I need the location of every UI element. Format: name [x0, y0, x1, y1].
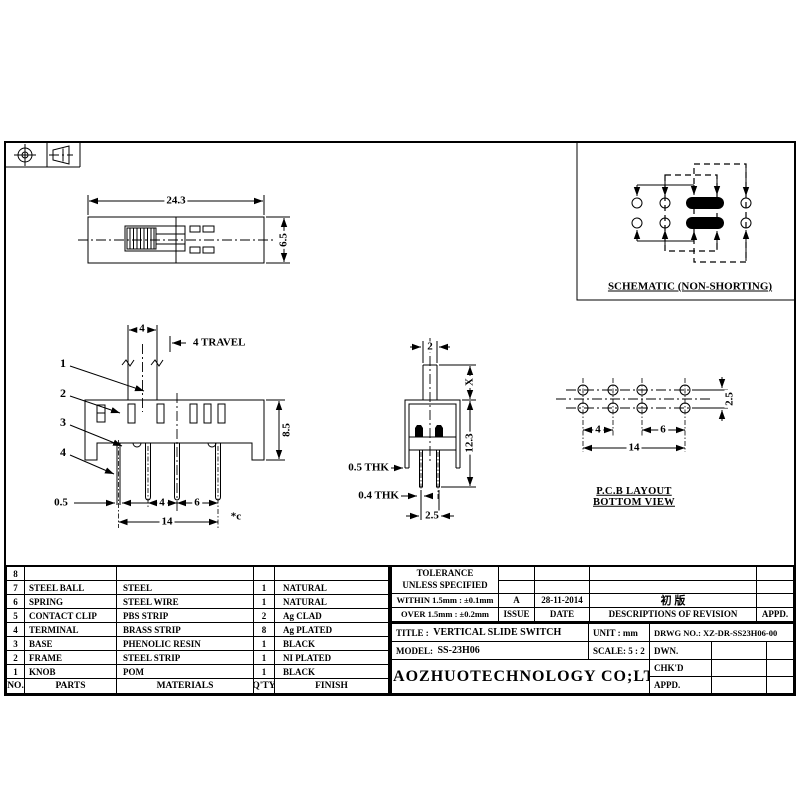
parts-row-qty: 1 — [254, 581, 275, 595]
parts-header-parts: PARTS — [25, 679, 117, 693]
dim-front-pitch-b: 6 — [192, 498, 202, 509]
parts-row-part: SPRING — [25, 595, 117, 609]
tolerance-over: OVER 1.5mm : ±0.2mm — [392, 608, 499, 622]
model-label: MODEL: — [396, 646, 433, 656]
revision-empty-cell — [757, 567, 793, 581]
front-view — [70, 325, 285, 528]
revision-empty-cell — [590, 581, 757, 595]
callout-4-terminal: 4 — [60, 446, 66, 458]
revision-empty-cell — [535, 567, 590, 581]
parts-row-material: BRASS STRIP — [117, 623, 254, 637]
title-label: TITLE : — [396, 628, 429, 638]
pcb-bottom-view-caption: BOTTOM VIEW — [593, 498, 675, 509]
note-front-travel: 4 TRAVEL — [193, 338, 245, 349]
revision-empty-cell — [499, 567, 535, 581]
parts-row-part: KNOB — [25, 665, 117, 679]
revision-appd-label: APPD. — [757, 608, 793, 622]
revision-block: TOLERANCE UNLESS SPECIFIED WITHIN 1.5mm … — [390, 565, 795, 623]
parts-row-part: CONTACT CLIP — [25, 609, 117, 623]
parts-header-no: NO. — [7, 679, 25, 693]
parts-row-no: 4 — [7, 623, 25, 637]
date-label: DATE — [535, 608, 590, 622]
note-side-frame-thickness: 0.5 THK — [348, 463, 389, 474]
appd-label: APPD. — [650, 677, 712, 694]
parts-row-qty — [254, 567, 275, 581]
company-name: XIAOZHUOTECHNOLOGY CO;LTD — [392, 660, 650, 693]
dim-front-knob-width: 4 — [137, 324, 147, 335]
dwn-value-cell — [712, 642, 767, 660]
parts-row-material: STEEL WIRE — [117, 595, 254, 609]
chkd-value-cell — [712, 660, 767, 677]
parts-row-qty: 2 — [254, 609, 275, 623]
revision-empty-cell — [535, 581, 590, 595]
dwn-appd-cell — [767, 642, 793, 660]
dim-side-knob-width: 2 — [425, 342, 435, 353]
title-cell: TITLE : VERTICAL SLIDE SWITCH — [392, 624, 589, 642]
parts-row-material: STEEL STRIP — [117, 651, 254, 665]
drawing-number-cell: DRWG NO.: XZ-DR-SS23H06-00 — [650, 624, 793, 642]
issue-value: A — [499, 594, 535, 608]
dim-front-total-pitch: 14 — [160, 517, 175, 528]
parts-row-qty: 1 — [254, 665, 275, 679]
parts-row-qty: 1 — [254, 651, 275, 665]
dim-front-height: 8.5 — [282, 421, 293, 439]
parts-row-no: 5 — [7, 609, 25, 623]
revision-empty-cell — [757, 594, 793, 608]
parts-header-finish: FINISH — [275, 679, 388, 693]
dim-pcb-pitch-a: 4 — [593, 425, 603, 436]
dim-side-pin-span: 2.5 — [423, 511, 441, 522]
title-value: VERTICAL SLIDE SWITCH — [433, 627, 561, 638]
dim-front-pitch-a: 4 — [157, 498, 167, 509]
dwn-label: DWN. — [650, 642, 712, 660]
schematic-diagram — [577, 142, 795, 300]
parts-row-no: 3 — [7, 637, 25, 651]
parts-row-finish: Ag PLATED — [275, 623, 388, 637]
pcb-layout-caption: P.C.B LAYOUT — [596, 487, 671, 498]
parts-row-part: STEEL BALL — [25, 581, 117, 595]
tolerance-header: TOLERANCE UNLESS SPECIFIED — [392, 567, 499, 594]
revision-empty-cell — [757, 581, 793, 595]
parts-row-part: FRAME — [25, 651, 117, 665]
parts-row-no: 1 — [7, 665, 25, 679]
issue-label: ISSUE — [499, 608, 535, 622]
callout-2-frame: 2 — [60, 387, 66, 399]
parts-row-material: PBS STRIP — [117, 609, 254, 623]
parts-row-no: 8 — [7, 567, 25, 581]
model-value: SS-23H06 — [438, 645, 480, 656]
unit-label: UNIT : — [593, 628, 621, 638]
parts-row-qty: 1 — [254, 595, 275, 609]
dim-top-height: 6.5 — [279, 231, 290, 249]
tolerance-within: WITHIN 1.5mm : ±0.1mm — [392, 594, 499, 608]
parts-row-finish: Ag CLAD — [275, 609, 388, 623]
tolerance-line1: TOLERANCE — [417, 568, 474, 580]
parts-row-no: 2 — [7, 651, 25, 665]
parts-table: 8 7 STEEL BALL STEEL 1 NATURAL 6 SPRING … — [5, 565, 390, 695]
parts-row-finish: BLACK — [275, 637, 388, 651]
parts-row-finish: NATURAL — [275, 595, 388, 609]
parts-row-qty: 1 — [254, 637, 275, 651]
parts-row-part — [25, 567, 117, 581]
parts-header-qty: Q'TY — [254, 679, 275, 693]
revision-empty-cell — [499, 581, 535, 595]
scale-value: 5 : 2 — [628, 646, 645, 656]
drawing-sheet: 24.3 6.5 4 4 TRAVEL 1 2 3 4 8.5 0.5 4 6 … — [0, 0, 800, 800]
unit-value: mm — [623, 628, 638, 638]
parts-row-part: BASE — [25, 637, 117, 651]
title-block: TITLE : VERTICAL SLIDE SWITCH UNIT : mm … — [390, 622, 795, 695]
note-side-pin-thickness: 0.4 THK — [358, 491, 399, 502]
side-view — [391, 338, 476, 520]
revision-empty-cell — [590, 567, 757, 581]
revision-description-value: 初 版 — [590, 594, 757, 608]
parts-row-finish: NATURAL — [275, 581, 388, 595]
parts-row-qty: 8 — [254, 623, 275, 637]
date-value: 28-11-2014 — [535, 594, 590, 608]
chkd-label: CHK'D — [650, 660, 712, 677]
revision-description-label: DESCRIPTIONS OF REVISION — [590, 608, 757, 622]
pcb-layout-view — [556, 377, 728, 452]
dim-pcb-row-pitch: 2.5 — [725, 390, 736, 408]
projection-symbol-icon — [5, 142, 80, 167]
parts-row-finish: BLACK — [275, 665, 388, 679]
parts-header-materials: MATERIALS — [117, 679, 254, 693]
parts-row-material: PHENOLIC RESIN — [117, 637, 254, 651]
tolerance-line2: UNLESS SPECIFIED — [402, 580, 487, 592]
parts-row-material — [117, 567, 254, 581]
parts-row-finish — [275, 567, 388, 581]
callout-1-knob: 1 — [60, 357, 66, 369]
dim-front-pin-thickness: 0.5 — [52, 498, 70, 509]
parts-row-finish: NI PLATED — [275, 651, 388, 665]
dim-pcb-pitch-b: 6 — [658, 425, 668, 436]
parts-row-no: 7 — [7, 581, 25, 595]
dim-side-total-height: 12.3 — [465, 431, 476, 454]
schematic-caption: SCHEMATIC (NON-SHORTING) — [608, 282, 772, 293]
scale-label: SCALE: — [593, 646, 626, 656]
dim-pcb-total-pitch: 14 — [627, 443, 642, 454]
dim-top-width: 24.3 — [164, 196, 187, 207]
model-cell: MODEL: SS-23H06 — [392, 642, 589, 660]
parts-row-no: 6 — [7, 595, 25, 609]
callout-3-base: 3 — [60, 416, 66, 428]
scale-cell: SCALE: 5 : 2 — [589, 642, 650, 660]
parts-row-material: STEEL — [117, 581, 254, 595]
parts-row-material: POM — [117, 665, 254, 679]
appd-value-cell — [712, 677, 767, 694]
chkd-appd-cell — [767, 660, 793, 677]
appd-appd-cell — [767, 677, 793, 694]
dim-side-knob-height: X — [465, 376, 476, 388]
note-front-c: *c — [231, 512, 241, 523]
unit-cell: UNIT : mm — [589, 624, 650, 642]
parts-row-part: TERMINAL — [25, 623, 117, 637]
